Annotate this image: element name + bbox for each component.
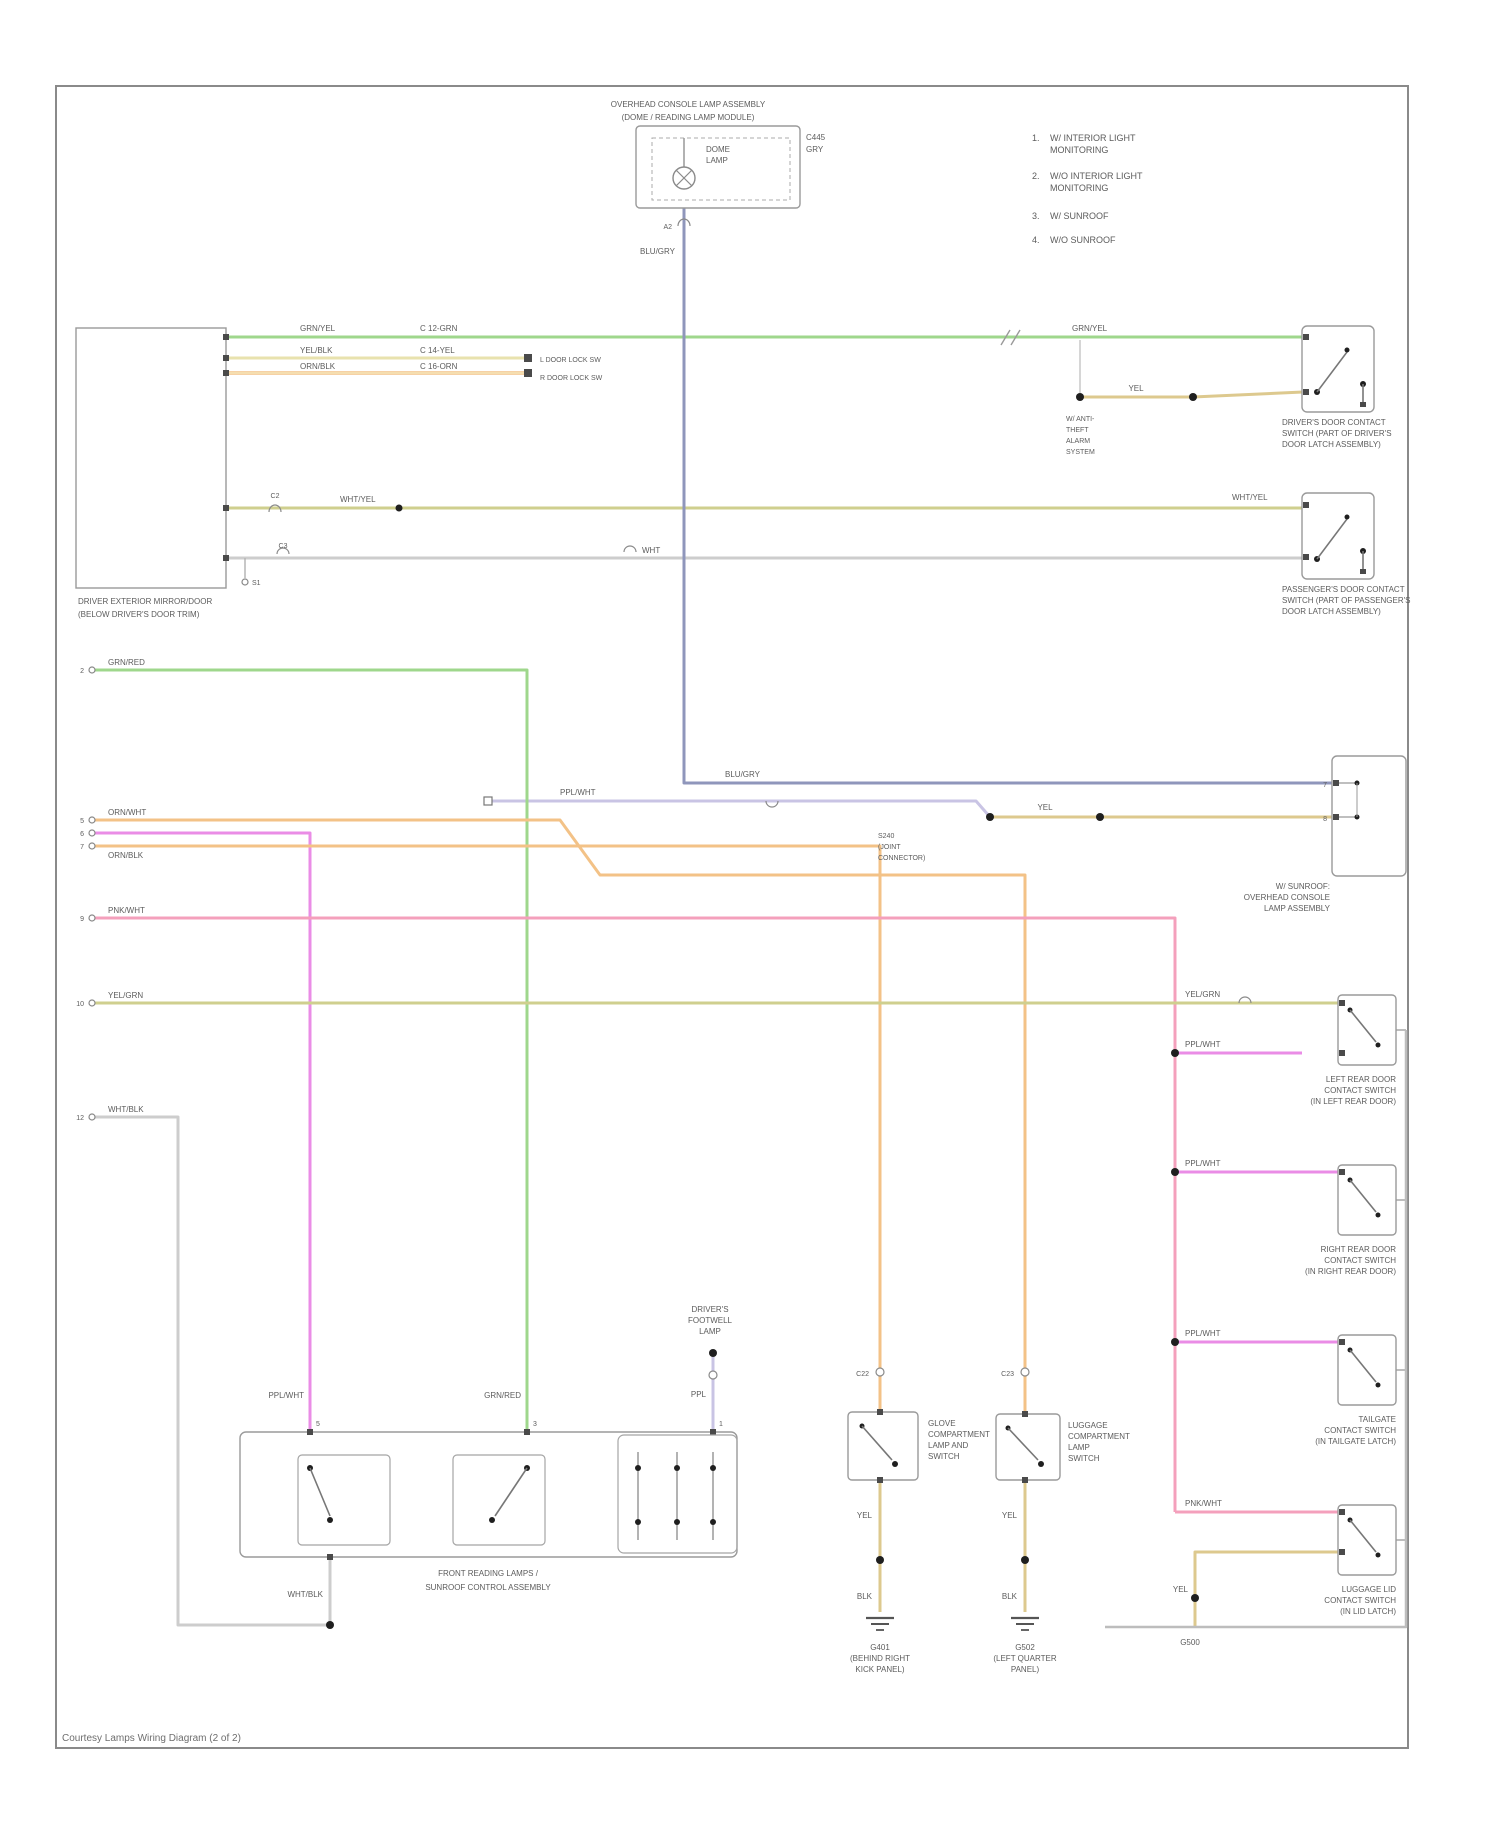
switch-pin xyxy=(1303,389,1309,395)
stub-terminal-icon xyxy=(89,1000,95,1006)
stub-terminal-icon xyxy=(89,843,95,849)
switch-contact xyxy=(1345,515,1350,520)
rear-switch-4-label2: CONTACT SWITCH xyxy=(1324,1596,1396,1605)
switch1-note4: SYSTEM xyxy=(1066,449,1095,456)
component-pin xyxy=(1333,780,1339,786)
stub-number: 10 xyxy=(76,1001,84,1008)
switch-contact xyxy=(1376,1213,1381,1218)
magenta-drop-label: PPL/WHT xyxy=(268,1391,304,1400)
splice-dot xyxy=(1171,1049,1179,1057)
yellow-wire-terminal xyxy=(524,354,532,362)
switch-pin xyxy=(1339,1050,1345,1056)
top-connector-label2: GRY xyxy=(806,145,824,154)
luggage-ground-label2: (LEFT QUARTER xyxy=(993,1654,1056,1663)
switch2-label1: PASSENGER'S DOOR CONTACT xyxy=(1282,585,1405,594)
white-wire-stub-label: S1 xyxy=(252,580,261,587)
luggage-ground-wire-label1: YEL xyxy=(1002,1511,1018,1520)
olive-connector-label: C2 xyxy=(271,493,280,500)
legend-item-1-line1: W/ INTERIOR LIGHT xyxy=(1050,133,1136,143)
component-pin-label: 8 xyxy=(1323,816,1327,823)
splice-dot xyxy=(1189,393,1197,401)
assembly-pin xyxy=(307,1429,313,1435)
switch-contact xyxy=(1038,1461,1044,1467)
module-pin xyxy=(223,334,229,340)
splice-note1: S240 xyxy=(878,833,894,840)
driver-door-module-box xyxy=(76,328,226,588)
switch1-note2: THEFT xyxy=(1066,427,1089,434)
yellow-wire-end-label: L DOOR LOCK SW xyxy=(540,357,601,364)
rear-switch-3-label2: CONTACT SWITCH xyxy=(1324,1426,1396,1435)
assembly-pin-number: 1 xyxy=(719,1421,723,1428)
stub-wire-label: YEL/GRN xyxy=(108,991,143,1000)
splice-dot xyxy=(1076,393,1084,401)
stub-terminal-icon xyxy=(89,1114,95,1120)
splice-note3: CONNECTOR) xyxy=(878,855,925,862)
rear-switch-1-label3: (IN LEFT REAR DOOR) xyxy=(1310,1097,1396,1106)
ground-bus-label: G500 xyxy=(1180,1638,1200,1647)
rear-switch-3-label1: TAILGATE xyxy=(1359,1415,1397,1424)
switch1-label2: SWITCH (PART OF DRIVER'S xyxy=(1282,429,1392,438)
yellow-wire-label-b: C 14-YEL xyxy=(420,346,455,355)
module-pin xyxy=(223,370,229,376)
switch-pin xyxy=(1022,1477,1028,1483)
stub-number: 6 xyxy=(80,831,84,838)
diagram-caption: Courtesy Lamps Wiring Diagram (2 of 2) xyxy=(62,1733,241,1744)
top-inner-label2: LAMP xyxy=(706,156,728,165)
wiring-diagram-page: Courtesy Lamps Wiring Diagram (2 of 2) xyxy=(0,0,1500,1828)
rear-switch-4-label1: LUGGAGE LID xyxy=(1342,1585,1396,1594)
top-inner-label1: DOME xyxy=(706,145,730,154)
orange-wire-label-a: ORN/BLK xyxy=(300,362,336,371)
switch-pin xyxy=(1303,554,1309,560)
switch-contact xyxy=(489,1517,495,1523)
assembly-pin xyxy=(710,1429,716,1435)
splice-dot xyxy=(1191,1594,1199,1602)
drop-connector-label: C22 xyxy=(856,1371,869,1378)
glove-ground-label3: KICK PANEL) xyxy=(855,1665,905,1674)
assembly-pin-number: 5 xyxy=(316,1421,320,1428)
chain-wire-label-1: PPL/WHT xyxy=(1185,1040,1221,1049)
switch-pin xyxy=(1339,1509,1345,1515)
stub-terminal-icon xyxy=(242,579,248,585)
rear-switch-4-label3: (IN LID LATCH) xyxy=(1340,1607,1396,1616)
luggage-ground-label1: G502 xyxy=(1015,1643,1035,1652)
module-pin xyxy=(223,355,229,361)
switch2-label3: DOOR LATCH ASSEMBLY) xyxy=(1282,607,1381,616)
stub-wire-label: PNK/WHT xyxy=(108,906,145,915)
stub-number: 2 xyxy=(80,668,84,675)
stub-number: 9 xyxy=(80,916,84,923)
splice-dot xyxy=(1096,813,1104,821)
lavender-run-label: PPL/WHT xyxy=(560,788,596,797)
rear-switch-2-label1: RIGHT REAR DOOR xyxy=(1321,1245,1397,1254)
splice-dot xyxy=(1171,1168,1179,1176)
splice-dot xyxy=(876,1556,884,1564)
switch-pin xyxy=(877,1409,883,1415)
switch-contact xyxy=(327,1517,333,1523)
luggage-switch-label2: COMPARTMENT xyxy=(1068,1432,1130,1441)
splice-dot xyxy=(326,1621,334,1629)
stub-terminal-icon xyxy=(89,830,95,836)
switch-contact xyxy=(1345,348,1350,353)
glove-ground-wire-label2: BLK xyxy=(857,1592,873,1601)
slate-run-label: BLU/GRY xyxy=(725,770,761,779)
top-connector-label1: C445 xyxy=(806,133,826,142)
top-title-line1: OVERHEAD CONSOLE LAMP ASSEMBLY xyxy=(611,100,766,109)
switch1-label3: DOOR LATCH ASSEMBLY) xyxy=(1282,440,1381,449)
footwell-lamp-label3: LAMP xyxy=(699,1327,721,1336)
switch-contact xyxy=(1376,1043,1381,1048)
stub-number: 7 xyxy=(80,844,84,851)
legend-num-1: 1. xyxy=(1032,133,1040,143)
overhead-lamp-label3: LAMP ASSEMBLY xyxy=(1264,904,1331,913)
yellow-wire-label-a: YEL/BLK xyxy=(300,346,333,355)
glove-lamp-switch-box xyxy=(848,1412,918,1480)
splice-dot xyxy=(396,505,403,512)
splice-dot xyxy=(1021,1556,1029,1564)
chain-tail-label: YEL xyxy=(1173,1585,1189,1594)
green-drop-label: GRN/RED xyxy=(484,1391,521,1400)
splice-dot xyxy=(1171,1338,1179,1346)
switch-contact xyxy=(892,1461,898,1467)
stub-terminal-icon xyxy=(89,915,95,921)
luggage-ground-label3: PANEL) xyxy=(1011,1665,1040,1674)
splice-dot xyxy=(709,1349,717,1357)
luggage-switch-label1: LUGGAGE xyxy=(1068,1421,1108,1430)
chain-wire-label-3: PPL/WHT xyxy=(1185,1329,1221,1338)
switch-pin xyxy=(1339,1000,1345,1006)
legend-item-3-line1: W/ SUNROOF xyxy=(1050,211,1109,221)
switch-pin xyxy=(1303,334,1309,340)
overhead-lamp-box xyxy=(1332,756,1406,876)
stub-terminal-icon xyxy=(89,817,95,823)
stub-wire-label: ORN/WHT xyxy=(108,808,146,817)
switch1-note3: ALARM xyxy=(1066,438,1090,445)
wiring-diagram-canvas: Courtesy Lamps Wiring Diagram (2 of 2) xyxy=(0,0,1500,1828)
drop-connector-label: C23 xyxy=(1001,1371,1014,1378)
switch-pin xyxy=(1022,1411,1028,1417)
assembly-label1: FRONT READING LAMPS / xyxy=(438,1569,539,1578)
overhead-lamp-label1: W/ SUNROOF: xyxy=(1276,882,1330,891)
stub-number: 5 xyxy=(80,818,84,825)
glove-switch-label4: SWITCH xyxy=(928,1452,960,1461)
lavender-drop-label: PPL xyxy=(691,1390,707,1399)
switch-pin xyxy=(1339,1339,1345,1345)
switch-pin xyxy=(1339,1549,1345,1555)
green-wire-label-c: GRN/YEL xyxy=(1072,324,1108,333)
rear-switch-1-label2: CONTACT SWITCH xyxy=(1324,1086,1396,1095)
top-pin-label: A2 xyxy=(663,224,672,231)
switch-contact xyxy=(1376,1383,1381,1388)
connector-circle-icon xyxy=(709,1371,717,1379)
splice-note2: (JOINT xyxy=(878,844,901,851)
driver-door-module-label2: (BELOW DRIVER'S DOOR TRIM) xyxy=(78,610,200,619)
assembly-pin-number: 3 xyxy=(533,1421,537,1428)
legend-item-2-line1: W/O INTERIOR LIGHT xyxy=(1050,171,1143,181)
overhead-lamp-label2: OVERHEAD CONSOLE xyxy=(1244,893,1330,902)
glove-ground-label1: G401 xyxy=(870,1643,890,1652)
footwell-lamp-label1: DRIVER'S xyxy=(691,1305,728,1314)
connector-circle-icon xyxy=(876,1368,884,1376)
top-title-line2: (DOME / READING LAMP MODULE) xyxy=(622,113,755,122)
glove-switch-label3: LAMP AND xyxy=(928,1441,969,1450)
rear-switch-2-label2: CONTACT SWITCH xyxy=(1324,1256,1396,1265)
connector-circle-icon xyxy=(1021,1368,1029,1376)
switch-pin xyxy=(877,1477,883,1483)
switch1-label1: DRIVER'S DOOR CONTACT xyxy=(1282,418,1386,427)
module-pin xyxy=(223,555,229,561)
stub-wire-label: WHT/BLK xyxy=(108,1105,144,1114)
orange-wire-end-label: R DOOR LOCK SW xyxy=(540,375,603,382)
jumper-wire-label: YEL xyxy=(1128,384,1144,393)
lavender-terminal-icon xyxy=(484,797,492,805)
switch-pin xyxy=(1360,569,1366,574)
orange-wire-label-b: C 16-ORN xyxy=(420,362,458,371)
glove-switch-label1: GLOVE xyxy=(928,1419,956,1428)
luggage-switch-label4: SWITCH xyxy=(1068,1454,1100,1463)
olive-run-label: YEL/GRN xyxy=(1185,990,1220,999)
component-pin xyxy=(1333,814,1339,820)
front-reading-lamp-assembly-box xyxy=(240,1432,737,1557)
assembly-label2: SUNROOF CONTROL ASSEMBLY xyxy=(425,1583,551,1592)
legend-item-1-line2: MONITORING xyxy=(1050,145,1108,155)
switch2-label2: SWITCH (PART OF PASSENGER'S xyxy=(1282,596,1411,605)
glove-switch-label2: COMPARTMENT xyxy=(928,1430,990,1439)
olive-wire-label-a: WHT/YEL xyxy=(340,495,376,504)
chain-wire-label-4: PNK/WHT xyxy=(1185,1499,1222,1508)
assembly-pin xyxy=(327,1554,333,1560)
chain-wire-label-2: PPL/WHT xyxy=(1185,1159,1221,1168)
legend-item-2-line2: MONITORING xyxy=(1050,183,1108,193)
orange-wire-terminal xyxy=(524,369,532,377)
legend-num-2: 2. xyxy=(1032,171,1040,181)
olive-wire-label-b: WHT/YEL xyxy=(1232,493,1268,502)
module-pin xyxy=(223,505,229,511)
luggage-ground-wire-label2: BLK xyxy=(1002,1592,1018,1601)
white-wire-conn-label: C3 xyxy=(279,543,288,550)
legend-item-4-line1: W/O SUNROOF xyxy=(1050,235,1116,245)
switch-contact xyxy=(1376,1553,1381,1558)
green-wire-label-a: GRN/YEL xyxy=(300,324,336,333)
switch-pin xyxy=(1360,402,1366,407)
stub-wire-label: GRN/RED xyxy=(108,658,145,667)
assembly-out-wire-label: WHT/BLK xyxy=(287,1590,323,1599)
footwell-lamp-label2: FOOTWELL xyxy=(688,1316,733,1325)
splice-dot xyxy=(986,813,994,821)
glove-ground-label2: (BEHIND RIGHT xyxy=(850,1654,910,1663)
luggage-switch-label3: LAMP xyxy=(1068,1443,1090,1452)
rear-switch-1-label1: LEFT REAR DOOR xyxy=(1326,1075,1396,1084)
glove-ground-wire-label1: YEL xyxy=(857,1511,873,1520)
switch-pin xyxy=(1303,502,1309,508)
component-pin-label: 7 xyxy=(1323,782,1327,789)
assembly-pin xyxy=(524,1429,530,1435)
stub-wire-label: ORN/BLK xyxy=(108,851,144,860)
rear-switch-3-label3: (IN TAILGATE LATCH) xyxy=(1315,1437,1396,1446)
luggage-lamp-switch-box xyxy=(996,1414,1060,1480)
stub-number: 12 xyxy=(76,1115,84,1122)
stub-terminal-icon xyxy=(89,667,95,673)
slate-wire-label: BLU/GRY xyxy=(640,247,676,256)
driver-door-module-label1: DRIVER EXTERIOR MIRROR/DOOR xyxy=(78,597,212,606)
white-wire-label: WHT xyxy=(642,546,660,555)
legend-num-4: 4. xyxy=(1032,235,1040,245)
switch1-note1: W/ ANTI- xyxy=(1066,416,1095,423)
rear-switch-2-label3: (IN RIGHT REAR DOOR) xyxy=(1305,1267,1396,1276)
switch-pin xyxy=(1339,1169,1345,1175)
green-wire-label-b: C 12-GRN xyxy=(420,324,458,333)
splice-wire-label: YEL xyxy=(1037,803,1053,812)
legend-num-3: 3. xyxy=(1032,211,1040,221)
